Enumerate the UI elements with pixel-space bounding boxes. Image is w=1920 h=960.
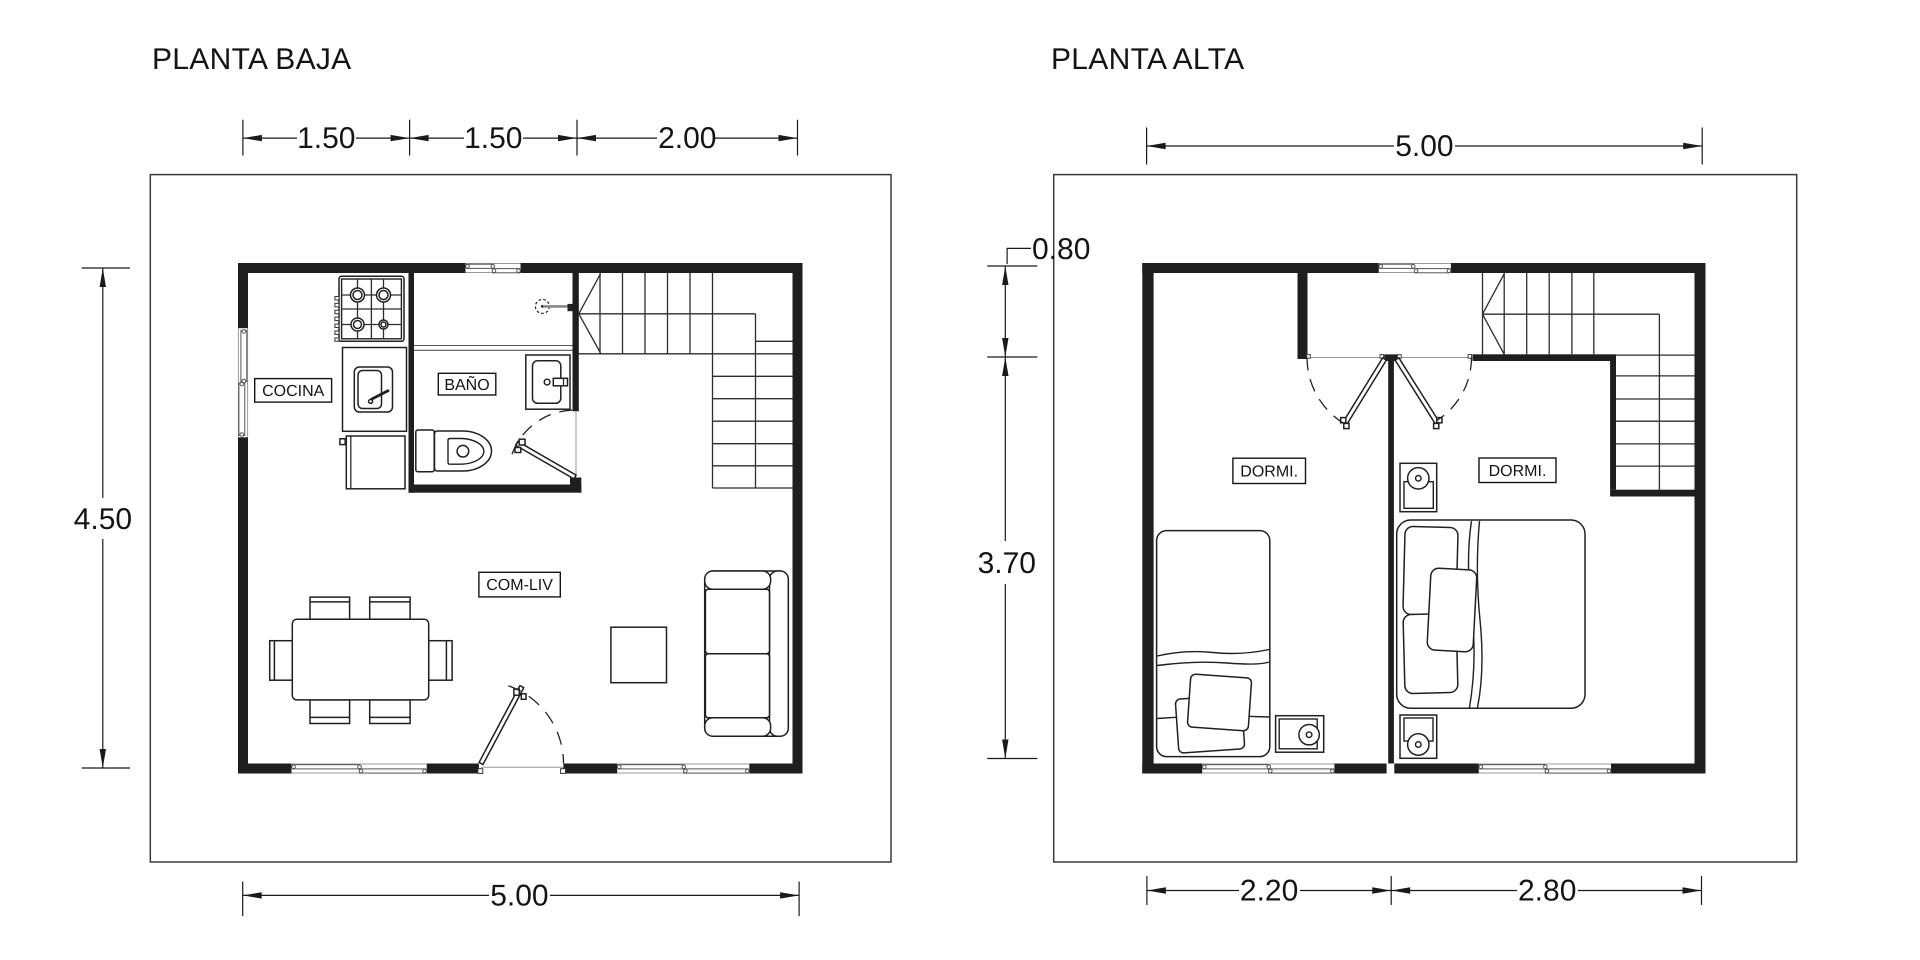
svg-text:BAÑO: BAÑO xyxy=(444,375,489,394)
svg-text:5.00: 5.00 xyxy=(1395,130,1453,163)
svg-text:2.20: 2.20 xyxy=(1240,875,1298,908)
svg-text:2.00: 2.00 xyxy=(658,122,716,155)
svg-text:DORMI.: DORMI. xyxy=(1489,463,1547,480)
svg-text:2.80: 2.80 xyxy=(1518,875,1576,908)
svg-text:3.70: 3.70 xyxy=(978,547,1036,580)
svg-text:DORMI.: DORMI. xyxy=(1240,463,1298,480)
svg-text:PLANTA ALTA: PLANTA ALTA xyxy=(1051,43,1244,76)
svg-text:PLANTA BAJA: PLANTA BAJA xyxy=(152,43,352,76)
svg-text:5.00: 5.00 xyxy=(490,880,548,913)
svg-text:COM-LIV: COM-LIV xyxy=(486,577,553,594)
svg-text:0.80: 0.80 xyxy=(1032,233,1090,266)
svg-text:COCINA: COCINA xyxy=(262,383,325,400)
svg-text:1.50: 1.50 xyxy=(297,122,355,155)
svg-text:1.50: 1.50 xyxy=(464,122,522,155)
svg-text:4.50: 4.50 xyxy=(74,503,132,536)
